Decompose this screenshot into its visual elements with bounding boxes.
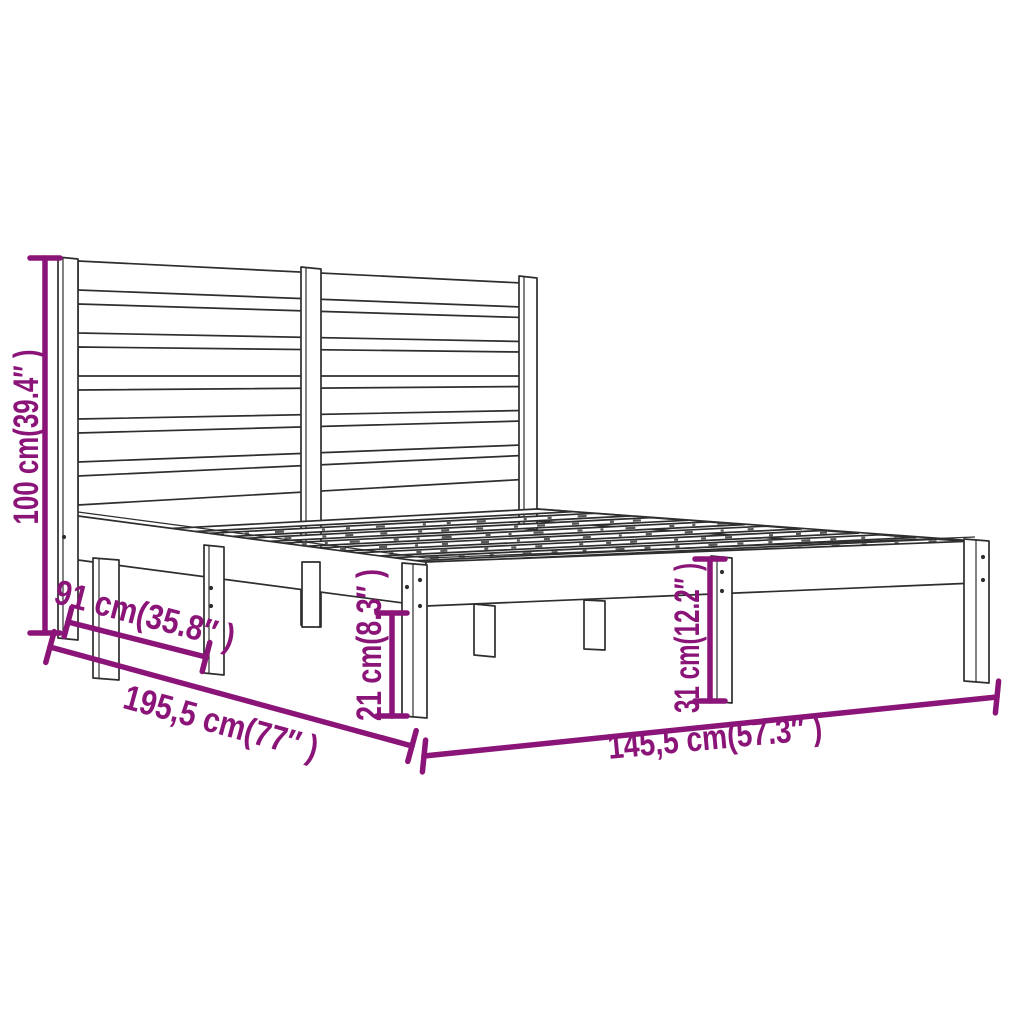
bed-dimension-diagram: 100 cm(39.4″ ) 91 cm(35.8″ ) 195,5 cm(77… bbox=[0, 0, 1024, 1024]
dimension-label-width: 145,5 cm(57.3″ ) bbox=[606, 708, 824, 767]
diagram-canvas: 100 cm(39.4″ ) 91 cm(35.8″ ) 195,5 cm(77… bbox=[0, 0, 1024, 1024]
headboard-right-post bbox=[519, 276, 537, 530]
headboard-slat bbox=[78, 261, 522, 307]
dimension-label-leg-height: 21 cm(8.3″ ) bbox=[350, 569, 389, 721]
headboard-slat bbox=[78, 456, 522, 506]
dimension-label-headboard-height: 100 cm(39.4″ ) bbox=[7, 350, 46, 525]
dimension-cap bbox=[995, 681, 998, 713]
headboard-middle-post-base bbox=[302, 562, 320, 627]
dimension-label-base-height: 31 cm(12.2″ ) bbox=[668, 563, 707, 713]
headboard-slat bbox=[78, 421, 522, 462]
front-middle-leg bbox=[711, 556, 732, 703]
headboard-slat bbox=[78, 347, 522, 376]
headboard-slat bbox=[78, 304, 522, 342]
headboard-slats bbox=[78, 261, 522, 505]
back-support-leg bbox=[474, 604, 495, 657]
headboard-slat bbox=[78, 387, 522, 420]
dimension-headboard-height: 100 cm(39.4″ ) bbox=[7, 258, 60, 633]
dimension-cap bbox=[422, 740, 425, 772]
back-support-leg bbox=[584, 600, 605, 650]
bed-drawing bbox=[58, 257, 989, 718]
